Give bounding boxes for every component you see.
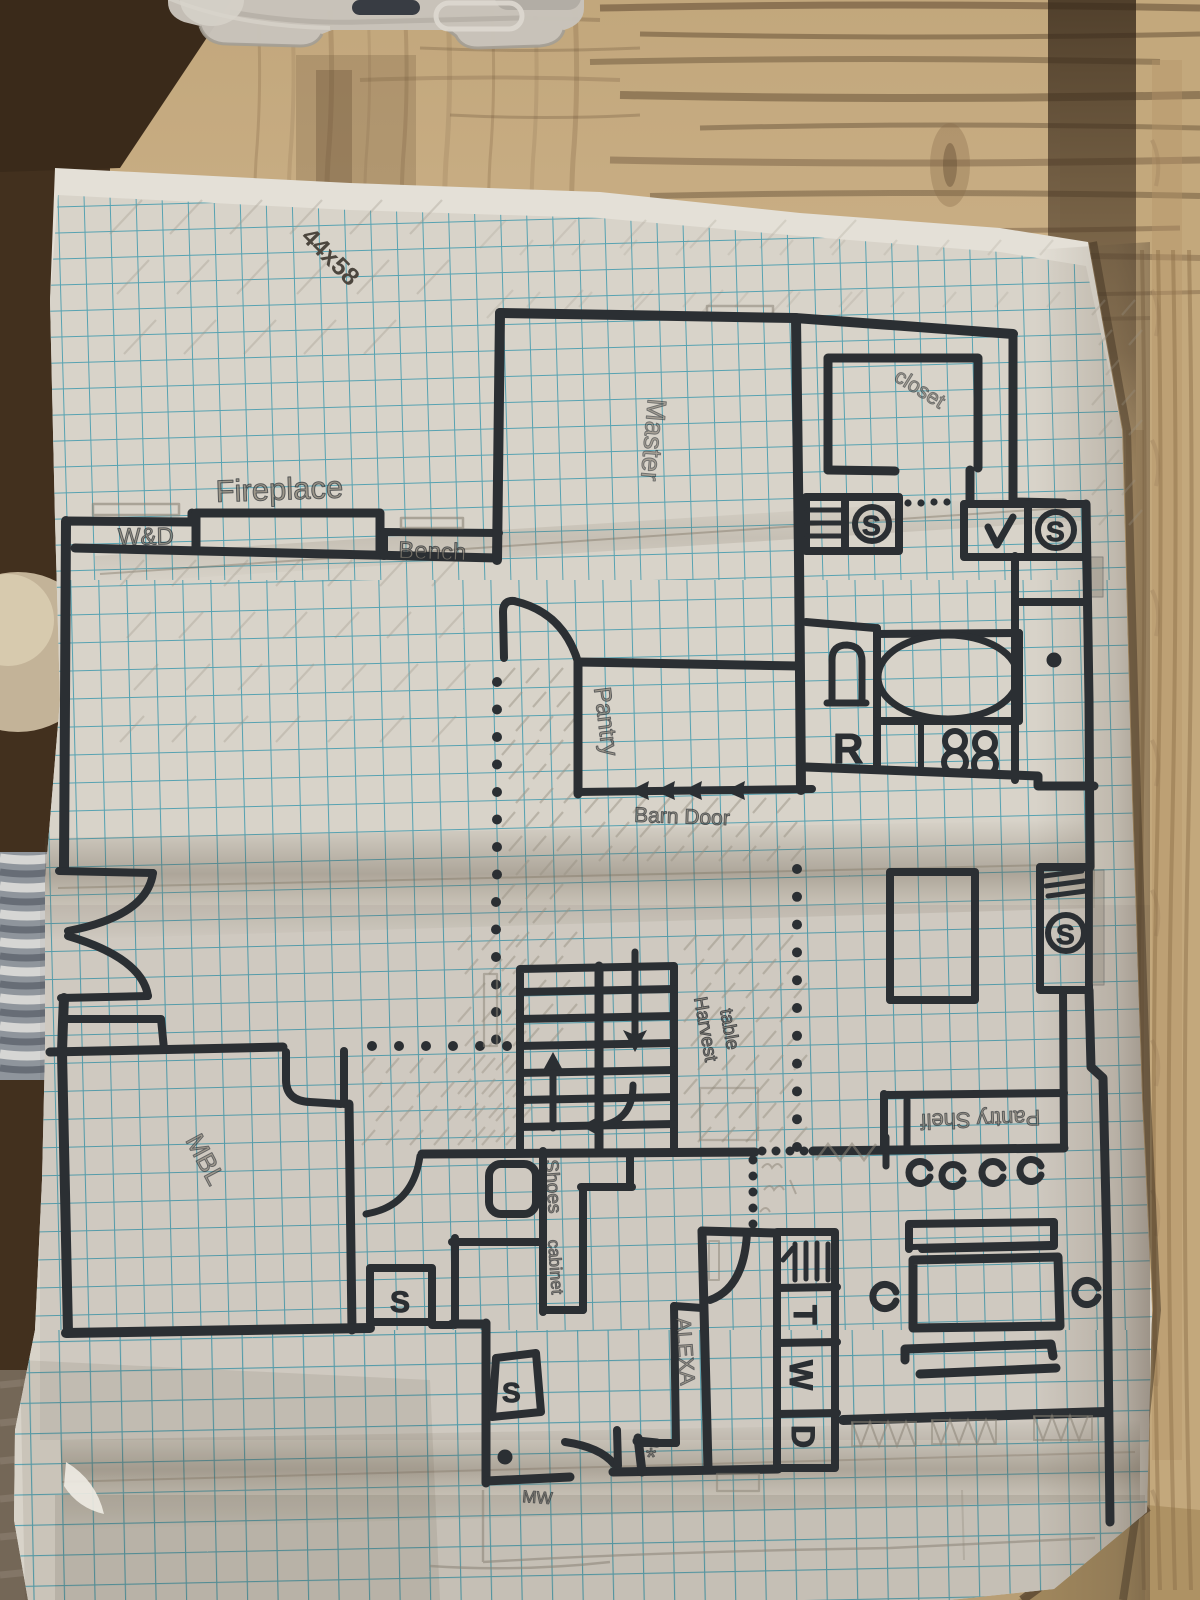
svg-text:Fireplace: Fireplace [215,470,344,509]
svg-text:ALEXA: ALEXA [671,1317,699,1386]
svg-text:D: D [785,1425,821,1448]
svg-text:MW: MW [522,1487,553,1508]
svg-text:Bench: Bench [398,537,467,566]
svg-text:S: S [862,510,881,541]
svg-text:cabinet: cabinet [544,1239,567,1295]
svg-text:S: S [502,1377,521,1408]
svg-text:Barn Door: Barn Door [634,804,730,830]
svg-text:W: W [783,1360,819,1391]
svg-text:T: T [787,1305,823,1325]
svg-text:S: S [1056,919,1075,950]
svg-text:Pantry Shelf: Pantry Shelf [919,1105,1041,1134]
svg-text:S: S [1046,516,1065,547]
svg-text:W&D: W&D [118,523,174,551]
svg-text:S: S [390,1286,410,1319]
